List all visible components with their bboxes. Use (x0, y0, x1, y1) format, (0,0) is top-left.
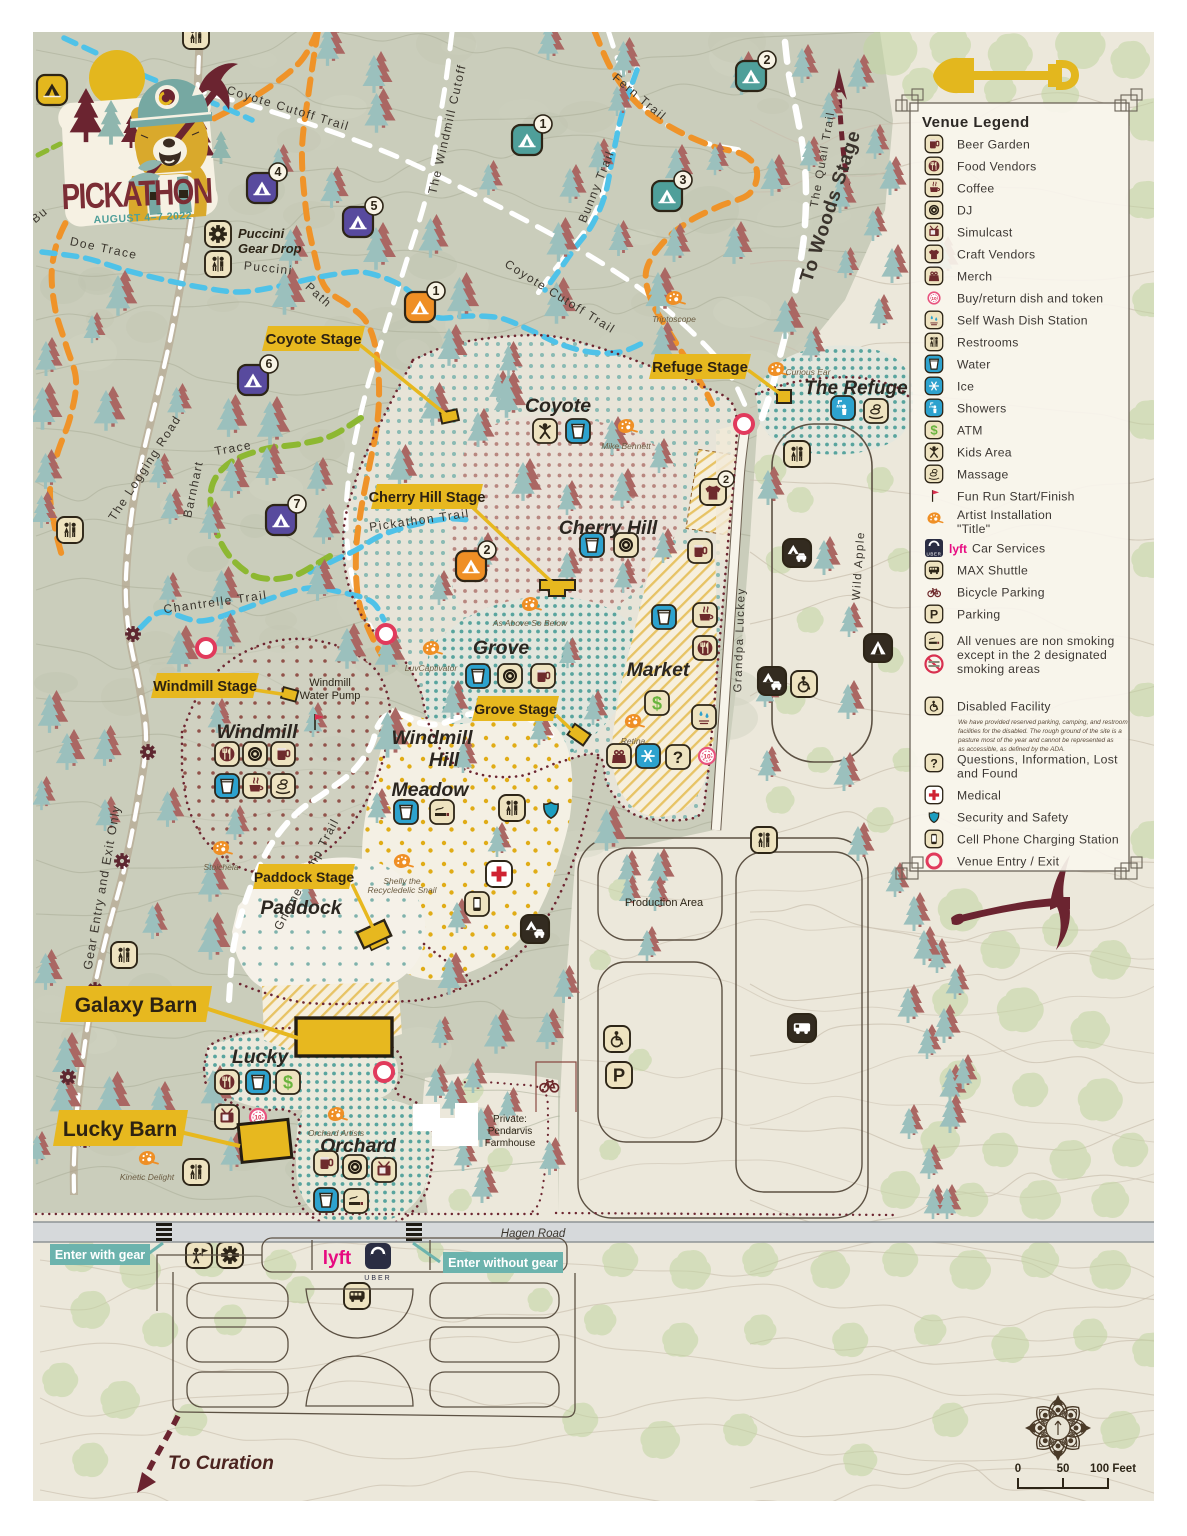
svg-text:Showers: Showers (957, 402, 1007, 416)
svg-text:7: 7 (294, 497, 301, 511)
svg-text:The Refuge: The Refuge (804, 378, 908, 399)
svg-text:Enter without gear: Enter without gear (448, 1256, 558, 1270)
svg-text:10: 10 (931, 296, 937, 301)
svg-text:6: 6 (266, 357, 273, 371)
svg-text:Orchard: Orchard (320, 1135, 397, 1157)
svg-text:Mike Bennett: Mike Bennett (601, 441, 651, 451)
svg-text:Grove Stage: Grove Stage (474, 701, 557, 717)
svg-text:2: 2 (764, 53, 771, 67)
svg-text:P: P (613, 1065, 625, 1086)
svg-text:Artist Installation: Artist Installation (957, 508, 1052, 522)
svg-text:except in the 2 designated: except in the 2 designated (957, 648, 1107, 662)
svg-text:Car Services: Car Services (972, 542, 1045, 556)
svg-text:Paddock Stage: Paddock Stage (254, 869, 355, 885)
svg-text:?: ? (673, 748, 683, 767)
svg-text:Market: Market (627, 659, 691, 681)
svg-text:$: $ (930, 423, 938, 438)
svg-text:Water Pump: Water Pump (300, 690, 361, 702)
svg-text:Questions, Information, Lost: Questions, Information, Lost (957, 753, 1118, 767)
svg-text:P: P (930, 607, 938, 621)
svg-text:Coyote: Coyote (525, 395, 591, 417)
svg-text:Windmill Stage: Windmill Stage (153, 679, 257, 695)
svg-text:Disabled Facility: Disabled Facility (957, 700, 1051, 714)
svg-text:2: 2 (484, 543, 491, 557)
svg-text:Medical: Medical (957, 789, 1001, 803)
svg-text:Food Vendors: Food Vendors (957, 160, 1037, 174)
svg-text:Buy/return dish and token: Buy/return dish and token (957, 292, 1103, 306)
svg-text:ATM: ATM (957, 424, 983, 438)
svg-text:Curious Ear: Curious Ear (786, 367, 832, 377)
svg-text:Self Wash Dish Station: Self Wash Dish Station (957, 314, 1088, 328)
svg-text:Kids Area: Kids Area (957, 446, 1012, 460)
svg-text:Lucky: Lucky (232, 1046, 290, 1068)
svg-text:Pendarvis: Pendarvis (488, 1126, 532, 1137)
svg-text:1: 1 (540, 117, 547, 131)
svg-text:lyft: lyft (323, 1248, 352, 1269)
svg-text:Retina: Retina (621, 736, 646, 746)
svg-text:MAX Shuttle: MAX Shuttle (957, 564, 1028, 578)
svg-text:10: 10 (703, 754, 711, 761)
svg-text:We have provided reserved park: We have provided reserved parking, campi… (958, 719, 1128, 726)
svg-text:$: $ (283, 1073, 293, 1093)
svg-text:Coffee: Coffee (957, 182, 995, 196)
svg-text:smoking areas: smoking areas (957, 662, 1040, 676)
svg-text:Private:: Private: (493, 1114, 527, 1125)
svg-text:Windmill: Windmill (309, 677, 351, 689)
svg-text:Fun Run Start/Finish: Fun Run Start/Finish (957, 490, 1075, 504)
svg-text:Cherry Hill Stage: Cherry Hill Stage (369, 490, 486, 506)
svg-text:Triptoscope: Triptoscope (652, 314, 696, 324)
svg-text:Kinetic Delight: Kinetic Delight (120, 1172, 175, 1182)
svg-text:Venue Entry / Exit: Venue Entry / Exit (957, 855, 1060, 869)
svg-text:Ice: Ice (957, 380, 974, 394)
svg-text:DJ: DJ (957, 204, 973, 218)
svg-text:LuvCaptivator: LuvCaptivator (405, 663, 459, 673)
svg-text:Massage: Massage (957, 468, 1009, 482)
svg-text:pasture most of the year and c: pasture most of the year and cannot be r… (957, 737, 1114, 744)
svg-text:5: 5 (371, 199, 378, 213)
svg-text:50: 50 (1057, 1463, 1070, 1475)
svg-text:To Curation: To Curation (168, 1453, 274, 1474)
svg-text:Venue Legend: Venue Legend (922, 114, 1030, 131)
svg-text:$: $ (652, 694, 662, 714)
svg-text:Coyote Stage: Coyote Stage (266, 331, 362, 348)
svg-text:Hill: Hill (429, 749, 460, 771)
svg-text:100 Feet: 100 Feet (1090, 1463, 1136, 1475)
svg-text:Recycledelic Snail: Recycledelic Snail (368, 885, 438, 895)
svg-text:Enter with gear: Enter with gear (55, 1248, 145, 1262)
svg-text:Water: Water (957, 358, 991, 372)
svg-text:Windmill: Windmill (391, 727, 473, 749)
svg-text:Cherry Hill: Cherry Hill (559, 517, 658, 539)
svg-text:Cell Phone Charging Station: Cell Phone Charging Station (957, 833, 1119, 847)
svg-text:Refuge Stage: Refuge Stage (652, 359, 748, 376)
svg-text:and Found: and Found (957, 767, 1018, 781)
svg-text:UBER: UBER (364, 1275, 391, 1282)
svg-text:Meadow: Meadow (392, 779, 471, 801)
svg-text:Stoichela: Stoichela (204, 862, 239, 872)
svg-text:Simulcast: Simulcast (957, 226, 1013, 240)
svg-text:Gear Drop: Gear Drop (238, 241, 302, 256)
svg-text:2: 2 (723, 474, 729, 486)
svg-text:Craft Vendors: Craft Vendors (957, 248, 1035, 262)
svg-text:Paddock: Paddock (260, 897, 342, 919)
svg-text:Puccini: Puccini (238, 226, 285, 241)
svg-text:Grove: Grove (473, 637, 530, 659)
svg-text:4: 4 (275, 165, 282, 179)
svg-text:Beer Garden: Beer Garden (957, 138, 1030, 152)
svg-text:lyft: lyft (949, 542, 967, 556)
svg-text:All venues are non smoking: All venues are non smoking (957, 634, 1115, 648)
svg-text:Security and Safety: Security and Safety (957, 811, 1069, 825)
svg-text:Restrooms: Restrooms (957, 336, 1019, 350)
svg-text:Farmhouse: Farmhouse (485, 1138, 536, 1149)
svg-text:0: 0 (1015, 1463, 1021, 1475)
svg-text:facilities for the disabled. T: facilities for the disabled. The rough g… (958, 728, 1122, 735)
svg-text:Windmill: Windmill (216, 721, 298, 743)
svg-text:Production Area: Production Area (625, 897, 704, 909)
svg-text:"Title": "Title" (957, 522, 990, 536)
svg-text:Parking: Parking (957, 608, 1000, 622)
svg-text:1: 1 (433, 284, 440, 298)
svg-text:10: 10 (254, 1115, 262, 1122)
svg-text:Galaxy Barn: Galaxy Barn (75, 994, 198, 1017)
svg-text:As Above So Below: As Above So Below (492, 618, 568, 628)
svg-text:?: ? (930, 756, 938, 770)
svg-text:Bicycle Parking: Bicycle Parking (957, 586, 1045, 600)
svg-text:3: 3 (680, 173, 687, 187)
svg-text:Lucky Barn: Lucky Barn (63, 1118, 177, 1141)
svg-text:Merch: Merch (957, 270, 992, 284)
svg-text:UBER: UBER (927, 552, 942, 557)
